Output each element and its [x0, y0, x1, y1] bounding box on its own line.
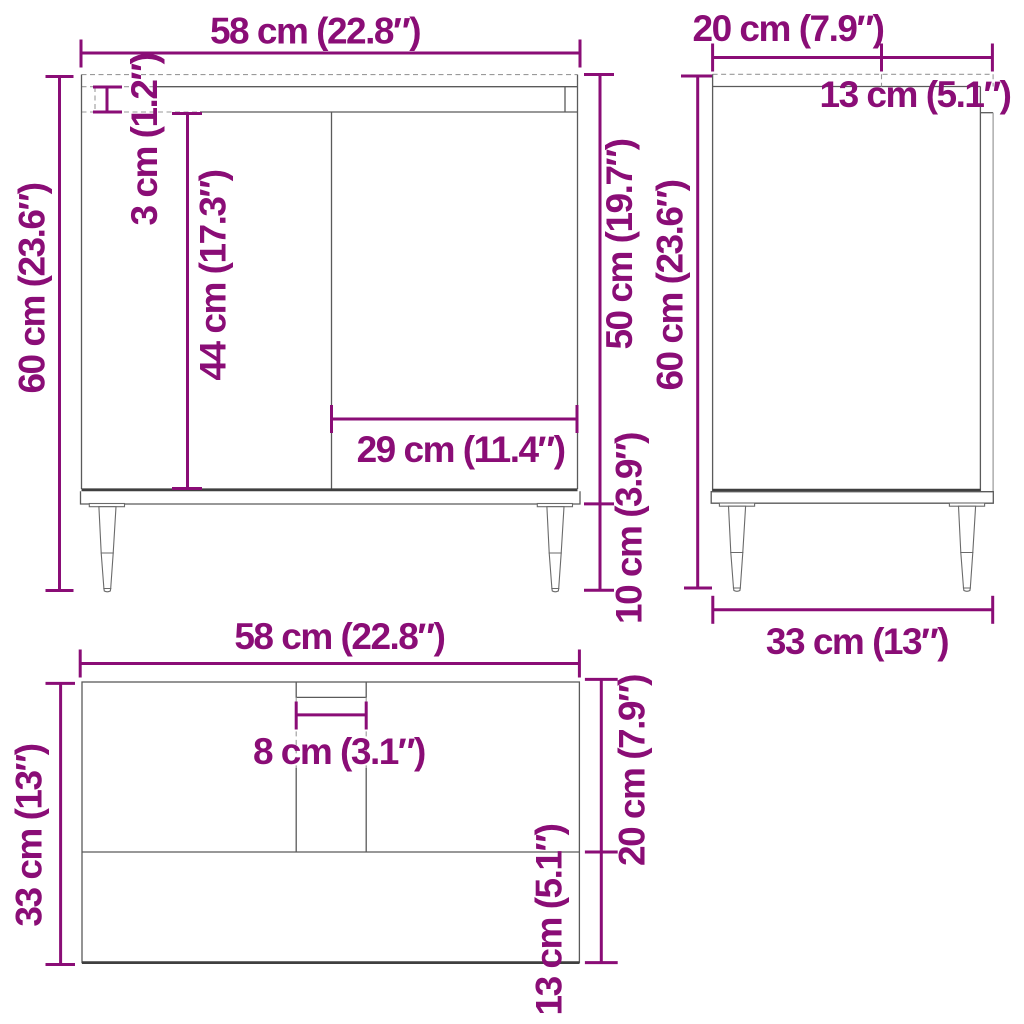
svg-text:13 cm (5.1″): 13 cm (5.1″)	[529, 824, 570, 1015]
svg-text:3 cm (1.2″): 3 cm (1.2″)	[124, 53, 165, 225]
svg-text:10 cm (3.9″): 10 cm (3.9″)	[609, 433, 650, 624]
svg-text:29 cm (11.4″): 29 cm (11.4″)	[357, 429, 565, 470]
svg-text:58 cm (22.8″): 58 cm (22.8″)	[234, 616, 444, 657]
svg-text:20 cm (7.9″): 20 cm (7.9″)	[693, 8, 884, 49]
svg-text:13 cm (5.1″): 13 cm (5.1″)	[820, 74, 1011, 115]
svg-text:60 cm (23.6″): 60 cm (23.6″)	[12, 183, 53, 393]
svg-text:60 cm (23.6″): 60 cm (23.6″)	[650, 180, 691, 390]
svg-text:58 cm (22.8″): 58 cm (22.8″)	[210, 11, 420, 52]
svg-text:33 cm (13″): 33 cm (13″)	[9, 744, 50, 926]
svg-text:50 cm (19.7″): 50 cm (19.7″)	[599, 139, 640, 349]
svg-text:33 cm (13″): 33 cm (13″)	[766, 621, 948, 662]
svg-text:44 cm (17.3″): 44 cm (17.3″)	[193, 170, 234, 380]
svg-text:8 cm (3.1″): 8 cm (3.1″)	[253, 731, 425, 772]
svg-text:20 cm (7.9″): 20 cm (7.9″)	[612, 675, 653, 866]
